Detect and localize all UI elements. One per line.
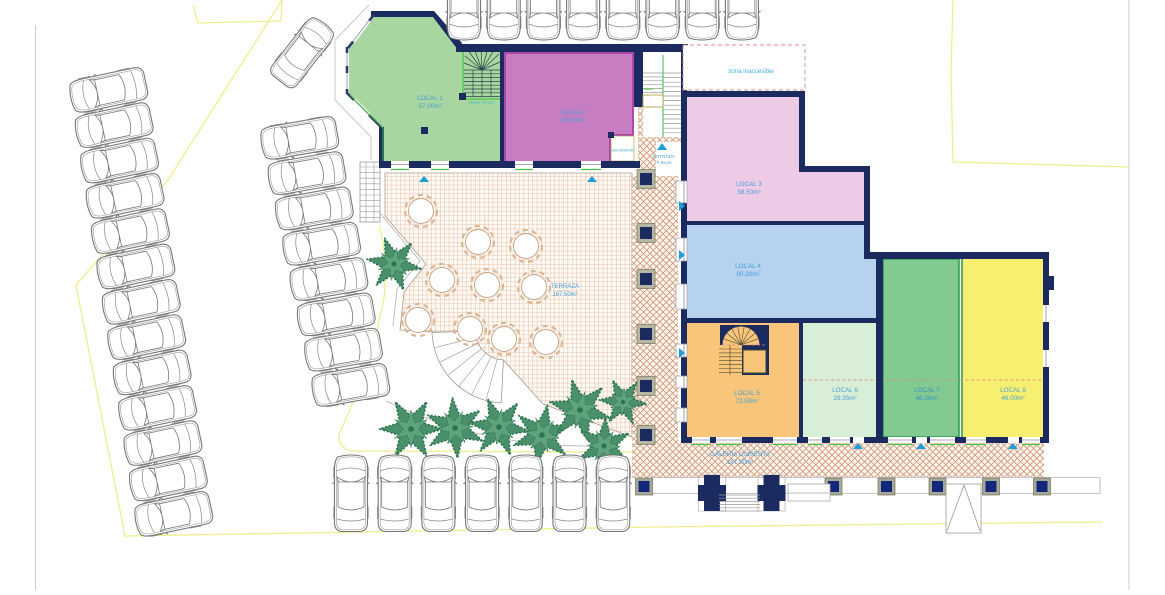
svg-text:57.00m²: 57.00m² <box>418 103 441 110</box>
svg-text:GALERIA CUBIERTA: GALERIA CUBIERTA <box>710 451 771 458</box>
svg-text:LOCAL 1: LOCAL 1 <box>417 95 443 102</box>
svg-text:LOCAL 2: LOCAL 2 <box>560 109 586 116</box>
svg-text:58.50m²: 58.50m² <box>737 189 760 196</box>
svg-text:LOCAL 8: LOCAL 8 <box>1000 387 1026 394</box>
svg-text:P. BAJA: P. BAJA <box>656 160 671 165</box>
svg-text:LOCAL 4: LOCAL 4 <box>735 263 761 270</box>
svg-text:60.30m²: 60.30m² <box>736 271 759 278</box>
svg-text:29.35m²: 29.35m² <box>833 395 856 402</box>
svg-text:LOCAL 3: LOCAL 3 <box>736 181 762 188</box>
svg-text:LOCAL 5: LOCAL 5 <box>734 390 760 397</box>
svg-text:72.50m²: 72.50m² <box>735 398 758 405</box>
svg-text:46.00m²: 46.00m² <box>1001 395 1024 402</box>
svg-text:TERRAZA: TERRAZA <box>551 284 579 290</box>
svg-text:45.80m²: 45.80m² <box>561 117 584 124</box>
svg-text:167.50m²: 167.50m² <box>552 292 577 298</box>
svg-text:46.00m²: 46.00m² <box>915 395 938 402</box>
svg-text:167.50m²: 167.50m² <box>727 459 754 466</box>
svg-text:ENTRADA: ENTRADA <box>653 154 676 159</box>
svg-text:zona inaccesible: zona inaccesible <box>728 68 774 75</box>
svg-text:ASCENSOR: ASCENSOR <box>612 148 634 153</box>
svg-text:Bajada Terraza: Bajada Terraza <box>469 101 493 105</box>
svg-text:LOCAL 6: LOCAL 6 <box>832 387 858 394</box>
svg-text:LOCAL 7: LOCAL 7 <box>914 387 940 394</box>
